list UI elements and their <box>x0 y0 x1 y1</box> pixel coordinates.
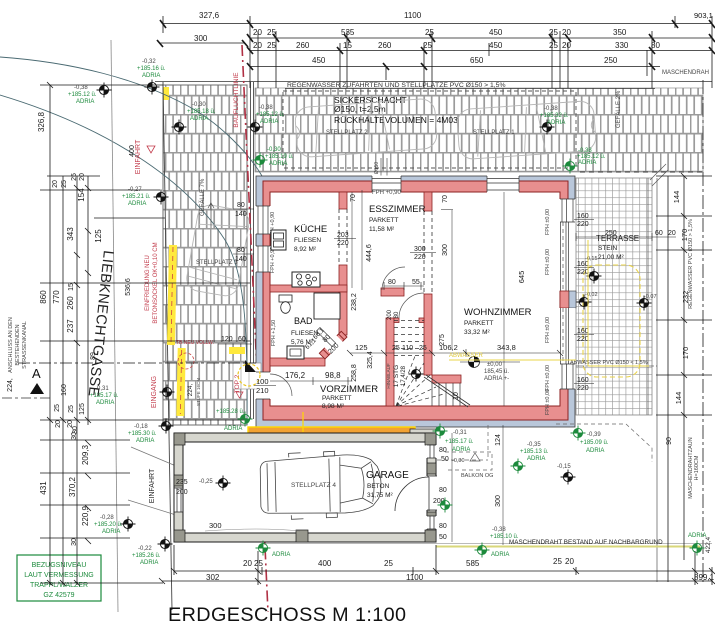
svg-text:11,58 M²: 11,58 M² <box>369 226 395 233</box>
svg-text:903,1: 903,1 <box>694 11 713 20</box>
svg-text:125: 125 <box>355 343 368 352</box>
svg-text:144: 144 <box>672 191 681 204</box>
svg-text:H=160CM: H=160CM <box>694 455 700 480</box>
svg-text:25: 25 <box>549 28 558 37</box>
svg-text:30: 30 <box>72 426 79 434</box>
svg-text:160: 160 <box>577 377 589 384</box>
svg-text:FLIESEN: FLIESEN <box>294 237 321 244</box>
svg-text:170: 170 <box>680 229 689 242</box>
svg-text:220: 220 <box>414 254 426 261</box>
svg-text:160: 160 <box>61 384 68 396</box>
svg-text:302: 302 <box>206 573 220 582</box>
svg-text:KÜCHE: KÜCHE <box>294 224 327 235</box>
svg-text:250: 250 <box>605 230 617 237</box>
svg-text:80: 80 <box>394 311 400 318</box>
svg-text:-0,28: -0,28 <box>100 515 114 521</box>
svg-text:8,98 M²: 8,98 M² <box>322 403 345 410</box>
svg-text:210: 210 <box>256 386 269 395</box>
svg-text:-0,18: -0,18 <box>134 424 148 430</box>
svg-text:1100: 1100 <box>406 573 424 582</box>
svg-text:260: 260 <box>66 296 75 310</box>
svg-text:EINGANG: EINGANG <box>151 376 158 408</box>
svg-text:535: 535 <box>341 28 355 37</box>
svg-text:25: 25 <box>61 180 68 188</box>
svg-text:-0,30: -0,30 <box>452 458 465 464</box>
svg-text:-0,25: -0,25 <box>199 479 213 485</box>
svg-text:15: 15 <box>343 41 352 50</box>
svg-text:-0,27: -0,27 <box>128 187 142 193</box>
svg-text:STRASSENKANAL: STRASSENKANAL <box>22 321 28 369</box>
svg-text:160: 160 <box>577 328 589 335</box>
svg-text:300: 300 <box>194 34 208 43</box>
svg-text:-0,30: -0,30 <box>267 147 281 153</box>
svg-text:+185.16 ü.: +185.16 ü. <box>137 66 166 72</box>
svg-text:238,2: 238,2 <box>351 293 358 311</box>
svg-text:20: 20 <box>253 41 262 50</box>
svg-text:25: 25 <box>425 28 434 37</box>
svg-text:20: 20 <box>565 557 574 566</box>
svg-text:25: 25 <box>423 41 432 50</box>
svg-text:20: 20 <box>79 173 86 181</box>
svg-text:80: 80 <box>237 202 245 209</box>
svg-text:400: 400 <box>318 559 332 568</box>
svg-text:MASCHENDRAH: MASCHENDRAH <box>662 70 709 76</box>
svg-text:20: 20 <box>562 41 571 50</box>
svg-text:ANSCHLUSS AN DEN: ANSCHLUSS AN DEN <box>8 317 14 373</box>
svg-text:STEIN: STEIN <box>598 245 617 252</box>
svg-text:209,3: 209,3 <box>81 444 90 465</box>
svg-text:585: 585 <box>466 559 480 568</box>
svg-text:FPH +0,90: FPH +0,90 <box>270 247 276 273</box>
svg-text:343: 343 <box>66 227 75 241</box>
svg-text:Ø150: Ø150 <box>374 162 380 174</box>
svg-text:-0,38: -0,38 <box>74 85 88 91</box>
svg-text:90: 90 <box>666 437 673 445</box>
svg-text:154: 154 <box>77 188 86 202</box>
svg-text:220: 220 <box>577 221 589 228</box>
svg-text:ADRIA: ADRIA <box>102 529 120 535</box>
svg-text:17 STG: 17 STG <box>393 365 400 387</box>
svg-text:ADRIA: ADRIA <box>76 99 94 105</box>
svg-text:80: 80 <box>439 447 447 454</box>
svg-text:+185.28 ü.: +185.28 ü. <box>216 409 245 415</box>
svg-text:25: 25 <box>267 41 276 50</box>
svg-text:10: 10 <box>453 392 460 400</box>
svg-text:185,45 ü.: 185,45 ü. <box>484 369 509 375</box>
svg-text:-0,30: -0,30 <box>192 102 206 108</box>
svg-text:220: 220 <box>337 240 349 247</box>
svg-text:899,1: 899,1 <box>694 573 715 582</box>
svg-text:25: 25 <box>54 404 61 412</box>
svg-text:60: 60 <box>655 230 663 237</box>
svg-text:20: 20 <box>52 180 59 188</box>
svg-text:1100: 1100 <box>404 11 422 20</box>
svg-text:STELLPLATZ 3: STELLPLATZ 3 <box>196 260 238 266</box>
svg-text:80: 80 <box>439 487 447 494</box>
svg-text:LAUT VERMESSUNG: LAUT VERMESSUNG <box>24 572 94 579</box>
svg-text:FPH ±0,00: FPH ±0,00 <box>545 317 551 343</box>
svg-text:HINABLAUF: HINABLAUF <box>386 363 391 389</box>
svg-text:330: 330 <box>615 41 629 50</box>
svg-text:EINFAHRT: EINFAHRT <box>135 139 142 174</box>
svg-text:25: 25 <box>392 345 400 352</box>
svg-text:ERDGESCHOSS M 1:100: ERDGESCHOSS M 1:100 <box>168 604 406 626</box>
svg-text:GEFÄLLE 2%: GEFÄLLE 2% <box>615 90 622 128</box>
svg-text:Ø150, t=2,5m: Ø150, t=2,5m <box>334 104 386 114</box>
svg-text:ADRIA: ADRIA <box>190 116 208 122</box>
svg-text:176,2: 176,2 <box>285 371 306 380</box>
svg-text:ESSZIMMER: ESSZIMMER <box>369 204 426 215</box>
svg-text:120: 120 <box>221 336 233 343</box>
svg-text:+185.12 ü.: +185.12 ü. <box>68 92 97 98</box>
svg-text:ADRIA: ADRIA <box>96 400 114 406</box>
svg-text:ADRIA: ADRIA <box>491 552 509 558</box>
svg-text:220: 220 <box>577 385 589 392</box>
svg-text:25: 25 <box>68 405 75 413</box>
svg-text:ADRIA: ADRIA <box>269 161 287 167</box>
svg-text:200: 200 <box>387 309 393 320</box>
svg-text:+185.26 ü.: +185.26 ü. <box>132 553 161 559</box>
svg-text:650: 650 <box>470 56 484 65</box>
svg-text:258,8: 258,8 <box>351 364 358 382</box>
svg-text:MASCHENDRAHT BESTAND AUF NACHB: MASCHENDRAHT BESTAND AUF NACHBARGRUND <box>509 539 663 546</box>
svg-text:70: 70 <box>442 195 449 203</box>
svg-text:50: 50 <box>439 534 447 541</box>
svg-text:BETON: BETON <box>367 483 390 490</box>
svg-text:GZ 42579: GZ 42579 <box>43 592 74 599</box>
svg-text:ABWASSER: ABWASSER <box>449 353 483 359</box>
svg-text:444,6: 444,6 <box>366 244 373 262</box>
svg-text:+185.10 ü.: +185.10 ü. <box>490 534 519 540</box>
svg-text:60: 60 <box>238 336 246 343</box>
svg-text:FPH ±0,00: FPH ±0,00 <box>545 365 551 391</box>
svg-text:235: 235 <box>176 479 188 486</box>
svg-text:25: 25 <box>254 559 263 568</box>
svg-text:-0,22: -0,22 <box>138 546 152 552</box>
svg-text:BAD: BAD <box>294 316 313 326</box>
svg-text:220: 220 <box>577 336 589 343</box>
svg-text:8,92 M²: 8,92 M² <box>294 246 317 253</box>
svg-text:-0,35: -0,35 <box>527 442 541 448</box>
svg-text:A: A <box>32 366 41 381</box>
svg-text:21,00 M²: 21,00 M² <box>598 254 624 261</box>
svg-text:80: 80 <box>439 523 447 530</box>
svg-text:343,8: 343,8 <box>497 343 516 352</box>
svg-text:400: 400 <box>129 145 136 157</box>
svg-text:-0,31: -0,31 <box>453 430 467 436</box>
svg-text:98,8: 98,8 <box>325 371 341 380</box>
svg-text:124: 124 <box>495 434 502 446</box>
svg-text:144: 144 <box>674 392 683 405</box>
svg-text:+185.30 ü.: +185.30 ü. <box>128 431 157 437</box>
svg-text:250: 250 <box>604 56 618 65</box>
svg-text:450: 450 <box>489 28 503 37</box>
svg-text:-0,15: -0,15 <box>585 256 598 262</box>
svg-text:25: 25 <box>553 557 562 566</box>
svg-text:275: 275 <box>439 334 446 346</box>
svg-text:170: 170 <box>681 347 690 360</box>
svg-text:PARKETT: PARKETT <box>464 320 494 327</box>
svg-text:326,8: 326,8 <box>37 111 46 132</box>
svg-text:325,4: 325,4 <box>367 351 374 369</box>
svg-text:160: 160 <box>577 261 589 268</box>
svg-text:GEFÄLLE 7%: GEFÄLLE 7% <box>199 178 206 216</box>
svg-text:860: 860 <box>39 290 48 304</box>
svg-text:STELLPLATZ 2: STELLPLATZ 2 <box>326 130 368 136</box>
svg-text:+185.12 ü.: +185.12 ü. <box>256 112 285 118</box>
svg-text:PARKETT: PARKETT <box>322 395 352 402</box>
svg-text:20: 20 <box>55 420 62 428</box>
svg-text:224,: 224, <box>187 383 194 396</box>
svg-text:100: 100 <box>256 377 269 386</box>
svg-text:30: 30 <box>71 538 78 546</box>
svg-text:33,32 M²: 33,32 M² <box>464 329 490 336</box>
svg-text:FPH ±0,00: FPH ±0,00 <box>545 209 551 235</box>
svg-text:20: 20 <box>668 230 676 237</box>
svg-text:20: 20 <box>562 28 571 37</box>
svg-text:+185.09 ü.: +185.09 ü. <box>580 440 609 446</box>
svg-text:FPH +1,50: FPH +1,50 <box>271 320 277 346</box>
svg-text:31,75 M²: 31,75 M² <box>367 492 393 499</box>
svg-text:FPH ±0,00: FPH ±0,00 <box>545 389 551 415</box>
svg-text:TOP 2: TOP 2 <box>234 374 241 393</box>
svg-text:300: 300 <box>414 246 426 253</box>
svg-text:15: 15 <box>68 283 75 291</box>
svg-text:260: 260 <box>296 41 310 50</box>
svg-text:ADRIA: ADRIA <box>688 533 706 539</box>
svg-text:25: 25 <box>384 559 393 568</box>
svg-text:140: 140 <box>235 211 247 218</box>
svg-text:-0,39: -0,39 <box>587 432 601 438</box>
svg-text:232: 232 <box>681 291 690 304</box>
svg-text:300: 300 <box>442 244 449 256</box>
svg-text:EINFAHRT: EINFAHRT <box>149 468 156 503</box>
svg-text:+185.20 ü.: +185.20 ü. <box>94 522 123 528</box>
svg-text:ADRIA: ADRIA <box>142 73 160 79</box>
svg-text:BESTEHENDEN: BESTEHENDEN <box>15 324 21 365</box>
svg-text:160: 160 <box>577 213 589 220</box>
svg-text:200: 200 <box>176 489 188 496</box>
svg-text:PARKETT: PARKETT <box>369 217 399 224</box>
svg-text:770: 770 <box>52 290 61 304</box>
svg-text:-0,02: -0,02 <box>585 292 598 298</box>
svg-text:50: 50 <box>441 456 449 463</box>
svg-text:25: 25 <box>549 41 558 50</box>
svg-text:350: 350 <box>613 28 627 37</box>
svg-text:220: 220 <box>577 269 589 276</box>
svg-text:ADRIA: ADRIA <box>140 560 158 566</box>
svg-text:237: 237 <box>66 319 75 333</box>
svg-text:25: 25 <box>71 173 78 181</box>
svg-text:ADRIA: ADRIA <box>547 120 565 126</box>
svg-text:125: 125 <box>79 403 86 415</box>
svg-text:-0,15: -0,15 <box>557 464 571 470</box>
svg-text:20: 20 <box>253 28 262 37</box>
svg-text:+185.18 ü.: +185.18 ü. <box>187 109 216 115</box>
svg-text:+185.13 ü.: +185.13 ü. <box>520 449 549 455</box>
svg-text:+185.21 ü.: +185.21 ü. <box>122 194 151 200</box>
svg-text:-0,32: -0,32 <box>142 59 156 65</box>
svg-text:260: 260 <box>378 41 392 50</box>
svg-text:ADRIA: ADRIA <box>272 552 290 558</box>
svg-text:±0,00: ±0,00 <box>487 362 503 368</box>
svg-text:ADRIA: ADRIA <box>452 447 470 453</box>
svg-text:327,6: 327,6 <box>199 11 220 20</box>
svg-text:25: 25 <box>267 28 276 37</box>
svg-text:140: 140 <box>235 256 247 263</box>
svg-text:REGENWASSER ZUFAHRTEN UND STEL: REGENWASSER ZUFAHRTEN UND STELLPLÄTZE PV… <box>287 81 506 89</box>
svg-text:ADRIA: ADRIA <box>136 438 154 444</box>
svg-text:80: 80 <box>237 247 245 254</box>
svg-text:WOHNZIMMER: WOHNZIMMER <box>464 307 532 318</box>
svg-text:+185.19 ü.: +185.19 ü. <box>265 154 294 160</box>
svg-text:ADRIA: ADRIA <box>578 160 596 166</box>
svg-text:ADRIA: ADRIA <box>224 426 242 432</box>
svg-text:GARAGE: GARAGE <box>366 470 409 481</box>
svg-text:203: 203 <box>337 232 349 239</box>
svg-text:450: 450 <box>312 56 326 65</box>
svg-text:-0,38: -0,38 <box>544 106 558 112</box>
svg-text:TERRASSE: TERRASSE <box>596 234 639 243</box>
svg-text:20: 20 <box>243 559 252 568</box>
svg-text:ADRIA: ADRIA <box>586 448 604 454</box>
svg-text:FPH +0,90: FPH +0,90 <box>372 190 402 196</box>
svg-text:BEZUGSNIVEAU: BEZUGSNIVEAU <box>32 562 87 569</box>
svg-text:536,6: 536,6 <box>125 278 132 296</box>
svg-text:RÜCKHALTEVOLUMEN = 4M03: RÜCKHALTEVOLUMEN = 4M03 <box>334 115 458 125</box>
svg-text:-0,38: -0,38 <box>259 105 273 111</box>
svg-text:431: 431 <box>39 481 48 495</box>
svg-text:ADRIA: ADRIA <box>260 119 278 125</box>
svg-text:370,2: 370,2 <box>68 476 77 497</box>
svg-text:125: 125 <box>94 229 103 243</box>
svg-text:+185.17 ü.: +185.17 ü. <box>445 439 474 445</box>
svg-text:25: 25 <box>419 345 427 352</box>
svg-text:110: 110 <box>402 345 413 352</box>
svg-text:80: 80 <box>388 279 396 286</box>
svg-text:80: 80 <box>651 41 660 50</box>
svg-text:ABWASSER PVC Ø150 < 1,5%: ABWASSER PVC Ø150 < 1,5% <box>570 360 648 366</box>
svg-text:450: 450 <box>489 41 503 50</box>
svg-text:70: 70 <box>350 194 357 202</box>
svg-text:55: 55 <box>412 279 420 286</box>
svg-text:+185.32 ü.: +185.32 ü. <box>540 113 569 119</box>
svg-text:ADRIA: ADRIA <box>527 456 545 462</box>
svg-text:89: 89 <box>90 352 97 360</box>
svg-text:224,: 224, <box>7 378 14 392</box>
svg-text:BALKON OG: BALKON OG <box>461 473 493 479</box>
svg-text:STELLPLATZ 4: STELLPLATZ 4 <box>291 482 336 489</box>
svg-text:STUFE 16CM: STUFE 16CM <box>196 378 201 406</box>
svg-text:ADRIA: ADRIA <box>128 201 146 207</box>
svg-text:-0,38: -0,38 <box>492 527 506 533</box>
svg-text:BAUFLUCHTLINIE: BAUFLUCHTLINIE <box>233 72 240 128</box>
svg-text:VORZIMMER: VORZIMMER <box>320 384 378 395</box>
svg-text:645: 645 <box>517 271 526 284</box>
svg-text:ADRIA +-: ADRIA +- <box>484 376 509 382</box>
svg-text:300: 300 <box>495 495 502 507</box>
svg-text:220,9: 220,9 <box>81 505 90 526</box>
svg-text:FPH ±0,00: FPH ±0,00 <box>545 249 551 275</box>
svg-text:17,4/28: 17,4/28 <box>401 365 407 386</box>
svg-text:300: 300 <box>209 521 222 530</box>
